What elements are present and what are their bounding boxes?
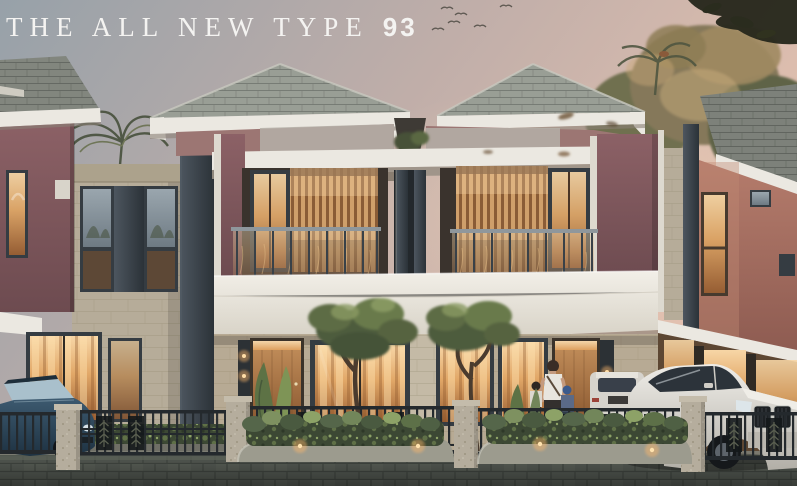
path-light <box>416 444 420 448</box>
fence-motif <box>726 418 742 452</box>
glass-railing <box>231 227 381 276</box>
fence-motif <box>128 416 144 450</box>
neighbor-small-window <box>750 190 771 207</box>
garden-bed-left <box>238 411 454 462</box>
glass-railing <box>450 229 598 276</box>
neighbor-window-low <box>779 254 795 276</box>
architectural-render-scene: THE ALL NEW TYPE 93 <box>0 0 797 486</box>
scene-illustration <box>0 0 797 486</box>
dusk-window-left-1 <box>80 186 114 292</box>
garden-bed-right <box>478 409 692 464</box>
fence-left-of-gate <box>0 412 56 454</box>
dusk-window-left-2 <box>144 186 178 292</box>
dark-column <box>180 126 214 460</box>
headline-text: THE ALL NEW TYPE <box>6 12 369 43</box>
ground-lit-window-2 <box>108 338 142 422</box>
fence-motif <box>96 416 112 450</box>
headline-type-number: 93 <box>383 12 418 43</box>
headline: THE ALL NEW TYPE 93 <box>6 12 418 43</box>
lit-window-strip <box>6 170 28 258</box>
path-light <box>298 444 302 448</box>
vent-box <box>55 180 70 199</box>
driveway-gate <box>78 410 228 456</box>
path-light <box>538 442 542 446</box>
fence-pillar <box>54 404 82 470</box>
central-divider <box>394 170 426 278</box>
balcony-side-wall <box>597 134 658 280</box>
window-divider-column <box>114 186 144 292</box>
neighbor-tall-window <box>701 192 728 296</box>
fence-pillar <box>452 400 480 468</box>
concrete-beam <box>70 164 182 182</box>
fence-motif <box>766 418 782 452</box>
fence-segment-4 <box>702 412 797 460</box>
path-light <box>650 448 654 452</box>
